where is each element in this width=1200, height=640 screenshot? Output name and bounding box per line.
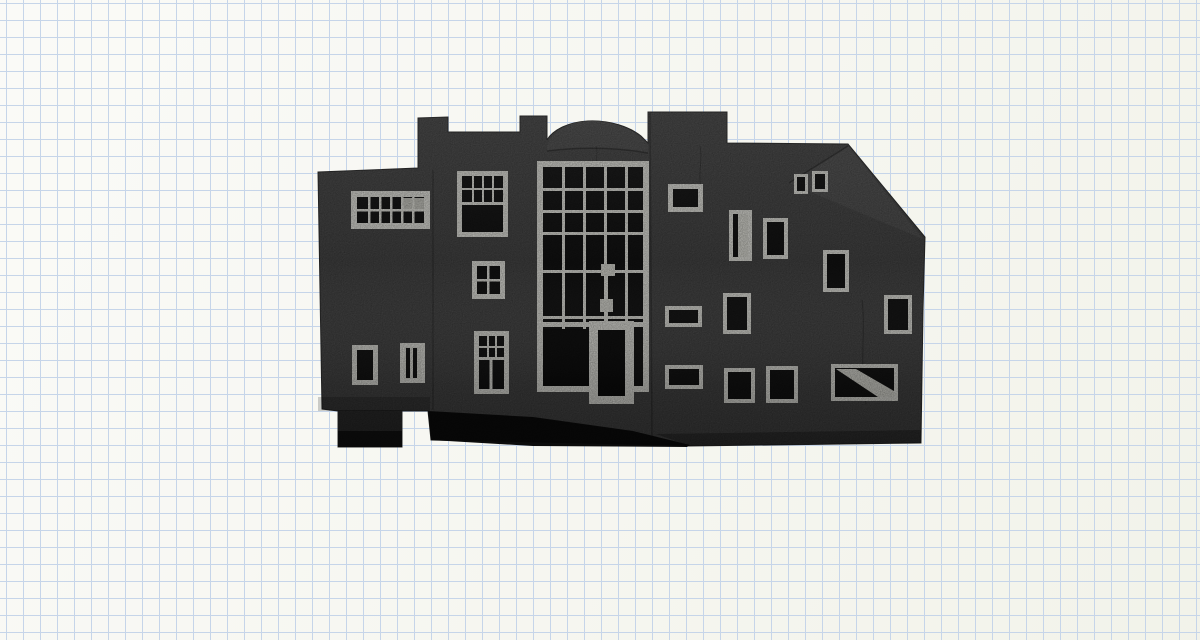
architectural-model-photo: [0, 0, 1200, 640]
building-model: [318, 112, 925, 447]
graph-paper-canvas: [0, 0, 1200, 640]
photo-grain-overlay: [318, 112, 925, 447]
